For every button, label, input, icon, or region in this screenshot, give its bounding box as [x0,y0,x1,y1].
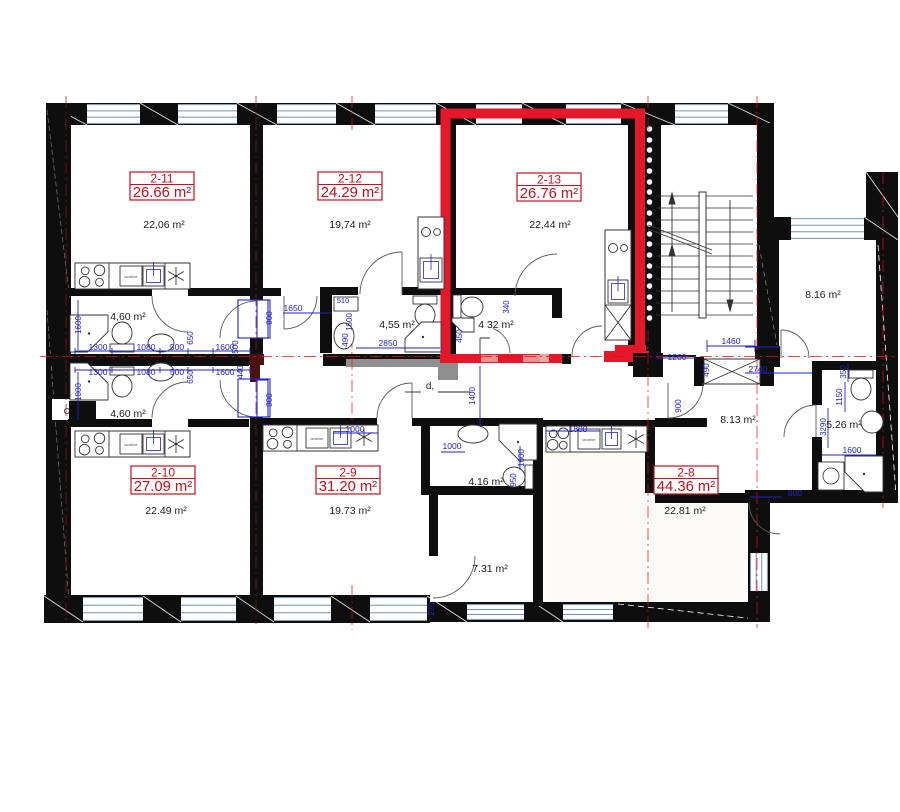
svg-text:26.66 m²: 26.66 m² [133,185,191,201]
svg-text:650: 650 [186,370,195,384]
svg-text:2740: 2740 [749,364,768,374]
svg-text:44.36 m²: 44.36 m² [657,479,715,495]
svg-text:800: 800 [788,488,802,498]
svg-text:d,: d, [426,381,434,392]
svg-text:950: 950 [509,473,518,487]
svg-text:2-11: 2-11 [150,172,173,186]
svg-text:4,60 m²: 4,60 m² [110,311,146,323]
svg-text:1300: 1300 [89,342,108,352]
svg-text:1150: 1150 [835,388,844,406]
svg-text:27.09 m²: 27.09 m² [134,479,192,495]
svg-text:22.49 m²: 22.49 m² [145,505,187,517]
svg-text:22,06 m²: 22,06 m² [143,219,185,231]
svg-text:2-8: 2-8 [677,466,695,480]
svg-text:4 32 m²: 4 32 m² [478,319,514,331]
svg-text:900: 900 [674,399,683,413]
svg-text:24.29 m²: 24.29 m² [321,185,379,201]
svg-text:350: 350 [839,365,848,379]
svg-text:1600: 1600 [216,367,235,377]
svg-text:1000: 1000 [346,424,365,434]
svg-text:1600: 1600 [517,449,526,467]
svg-text:1600: 1600 [345,313,354,331]
svg-text:440: 440 [236,365,245,379]
svg-text:31.20 m²: 31.20 m² [319,479,377,495]
svg-text:2-9: 2-9 [339,466,357,480]
svg-text:lavatrice: lavatrice [124,443,137,447]
svg-text:450: 450 [455,329,464,343]
svg-text:340: 340 [502,300,511,314]
svg-text:22.81 m²: 22.81 m² [664,505,706,517]
svg-text:1460: 1460 [722,336,741,346]
svg-text:900: 900 [265,393,274,407]
svg-text:2-13: 2-13 [537,173,561,187]
svg-text:8.16 m²: 8.16 m² [805,289,841,301]
svg-text:lavatrice: lavatrice [124,275,137,279]
svg-text:2850: 2850 [379,338,398,348]
svg-text:22,44 m²: 22,44 m² [529,219,571,231]
svg-text:1300: 1300 [89,367,108,377]
svg-text:510: 510 [337,296,350,305]
svg-text:1080: 1080 [137,342,156,352]
svg-text:2-10: 2-10 [151,466,175,480]
svg-text:lavatrice: lavatrice [310,437,323,441]
svg-text:4,60 m²: 4,60 m² [110,408,146,420]
svg-text:2-12: 2-12 [338,172,362,186]
svg-text:1000: 1000 [443,441,462,451]
svg-text:490: 490 [341,333,350,347]
svg-text:500: 500 [170,342,184,352]
svg-text:650: 650 [186,331,195,345]
svg-text:1800: 1800 [74,383,83,401]
svg-text:5.26 m²: 5.26 m² [826,419,862,431]
svg-text:4,55 m²: 4,55 m² [379,319,415,331]
svg-text:7.31 m²: 7.31 m² [472,563,508,575]
svg-text:900: 900 [265,311,274,325]
svg-text:490: 490 [702,363,711,377]
svg-text:19.73 m²: 19.73 m² [329,505,371,517]
svg-text:4.16 m²: 4.16 m² [468,476,504,488]
svg-text:500: 500 [170,367,184,377]
svg-text:1600: 1600 [843,445,862,455]
svg-text:1200: 1200 [668,352,687,362]
svg-text:1800: 1800 [569,424,588,434]
svg-text:lavatrice: lavatrice [582,438,595,442]
svg-text:500: 500 [231,340,240,354]
svg-text:1600: 1600 [74,316,83,334]
svg-text:1650: 1650 [284,303,303,313]
svg-text:270: 270 [427,602,436,616]
svg-text:19,74 m²: 19,74 m² [329,219,371,231]
svg-text:1400: 1400 [468,387,477,405]
svg-text:1080: 1080 [137,367,156,377]
svg-text:8.13 m²: 8.13 m² [720,414,756,426]
svg-text:26.76 m²: 26.76 m² [520,186,578,202]
